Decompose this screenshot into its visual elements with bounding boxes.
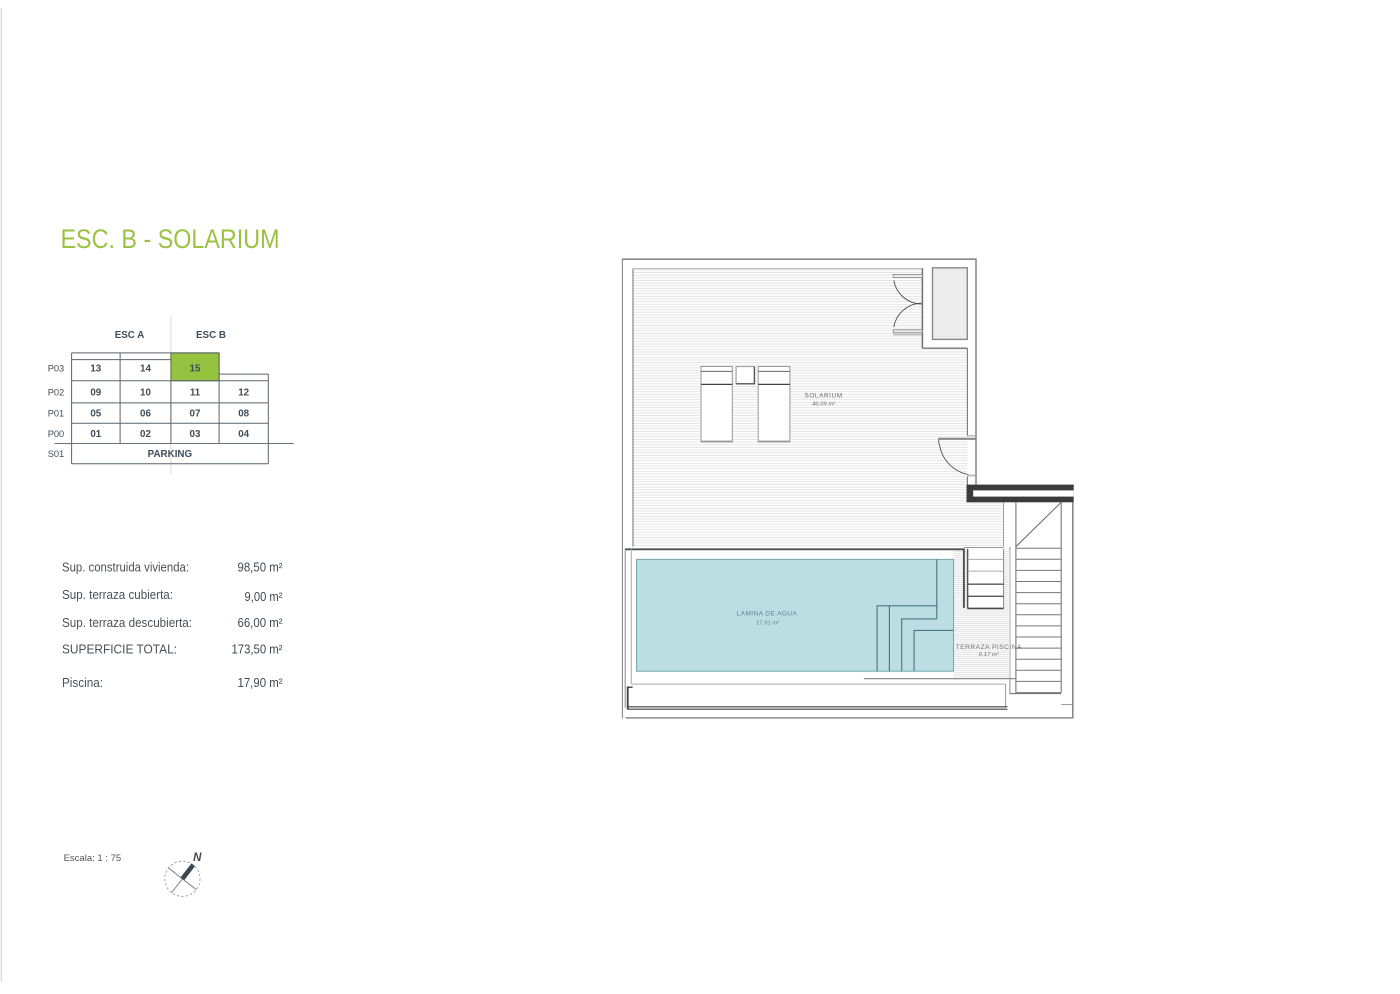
svg-text:Sup. construida vivienda:: Sup. construida vivienda: [62,560,189,575]
svg-text:ESC B: ESC B [196,330,226,341]
svg-text:LAMINA DE AGUA: LAMINA DE AGUA [737,610,798,617]
svg-text:ESC. B - SOLARIUM: ESC. B - SOLARIUM [61,224,280,254]
svg-text:17,90 m²: 17,90 m² [238,675,284,690]
svg-text:10: 10 [140,387,151,398]
svg-text:07: 07 [190,409,201,420]
svg-text:P02: P02 [48,387,65,397]
svg-text:46.09 m²: 46.09 m² [812,402,836,408]
svg-text:P03: P03 [48,364,65,374]
svg-text:N: N [193,852,202,864]
svg-text:08: 08 [238,409,249,420]
svg-text:05: 05 [90,409,101,420]
svg-text:66,00 m²: 66,00 m² [238,615,284,630]
svg-text:P01: P01 [48,408,65,418]
svg-text:09: 09 [90,387,101,398]
svg-text:Piscina:: Piscina: [62,675,103,690]
svg-text:9,00 m²: 9,00 m² [245,589,284,604]
svg-text:S01: S01 [48,449,65,459]
svg-text:Sup. terraza cubierta:: Sup. terraza cubierta: [62,587,173,602]
svg-text:12: 12 [238,387,249,398]
svg-text:06: 06 [140,409,151,420]
svg-text:14: 14 [140,364,151,375]
svg-text:6.17 m²: 6.17 m² [979,652,1000,658]
svg-text:PARKING: PARKING [148,449,193,460]
svg-text:P00: P00 [48,429,65,439]
svg-text:Escala: 1 : 75: Escala: 1 : 75 [64,853,122,864]
svg-text:17.91 m²: 17.91 m² [756,620,780,626]
svg-text:SOLARIUM: SOLARIUM [805,392,843,399]
svg-text:13: 13 [90,364,101,375]
svg-text:SUPERFICIE TOTAL:: SUPERFICIE TOTAL: [62,642,177,657]
svg-text:03: 03 [190,429,201,440]
svg-text:98,50 m²: 98,50 m² [238,560,284,575]
svg-text:01: 01 [90,429,101,440]
svg-text:Sup. terraza descubierta:: Sup. terraza descubierta: [62,615,192,630]
svg-text:02: 02 [140,429,151,440]
svg-text:15: 15 [190,364,201,375]
svg-text:04: 04 [238,429,249,440]
svg-text:11: 11 [190,387,201,398]
svg-text:173,50 m²: 173,50 m² [232,642,284,657]
svg-text:ESC A: ESC A [115,330,145,341]
svg-text:TERRAZA PISCINA: TERRAZA PISCINA [956,644,1022,651]
